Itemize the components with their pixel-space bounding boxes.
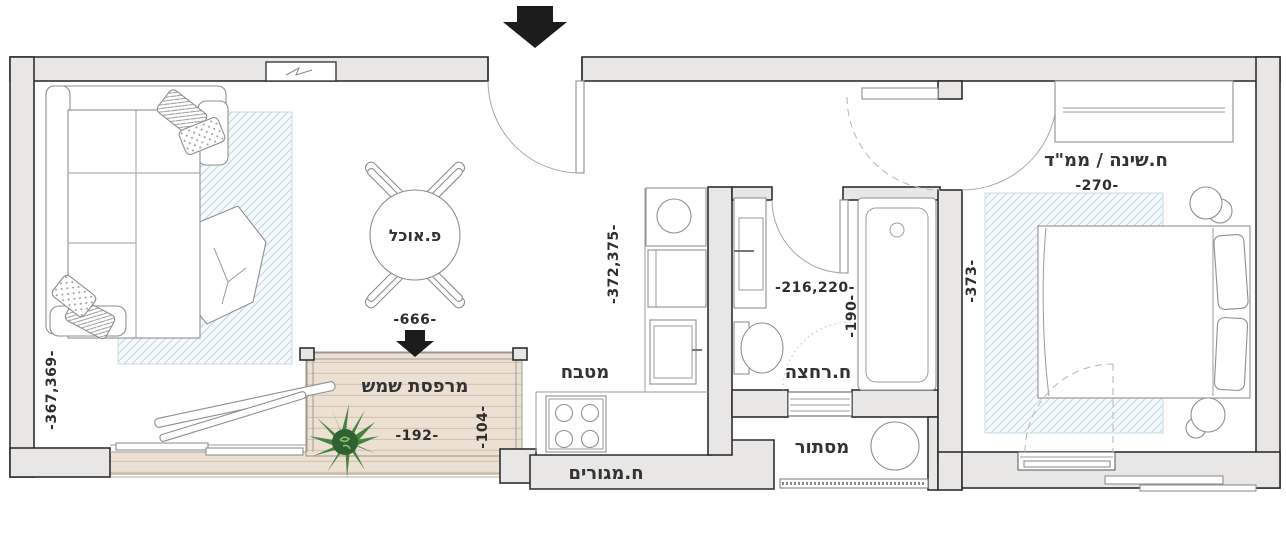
- wall-bedroom-bottom-corner: [938, 452, 962, 490]
- utility-closet: מסתור: [780, 422, 928, 488]
- bathroom: -216,220- -190- ח.רחצה: [734, 198, 936, 416]
- bedroom-depth-dim: -373-: [964, 259, 980, 302]
- balcony-depth-dim: -104-: [475, 405, 491, 448]
- pillow: [1213, 234, 1248, 310]
- outer-wall-left: [10, 57, 34, 477]
- pouf-bottom: [1186, 398, 1225, 438]
- pillow: [1214, 317, 1248, 390]
- entry-door-swing: [488, 81, 580, 173]
- bedroom-door-swing: [962, 95, 1057, 190]
- balcony-width-dim: -192-: [395, 428, 438, 444]
- burner: [582, 431, 599, 448]
- bedroom-door-leaf: [862, 88, 938, 99]
- window-sill-outer: [1105, 476, 1223, 484]
- wardrobe: [1055, 81, 1233, 142]
- wall-bedroom-door-pier: [938, 81, 962, 99]
- bathroom-depth-dim: -190-: [844, 294, 860, 337]
- kitchen: מטבח -372,375-: [536, 188, 708, 452]
- floor-plan: פ.אוכל מרפסת שמש -192- -104-: [0, 0, 1286, 533]
- window-sill-outer-2: [1140, 485, 1256, 491]
- balcony-post-right: [513, 348, 527, 360]
- burner: [582, 405, 599, 422]
- burner: [556, 405, 573, 422]
- bedroom-label: ח.שינה / ממ"ד: [1044, 150, 1168, 171]
- burner: [556, 431, 573, 448]
- wall-utility-right: [928, 417, 938, 490]
- entry-door-leaf: [576, 81, 584, 173]
- bed: [1038, 226, 1250, 398]
- dining-label: פ.אוכל: [389, 226, 441, 245]
- utility-label: מסתור: [795, 437, 850, 458]
- entrance-arrow-icon: [503, 6, 567, 48]
- boiler: [871, 422, 919, 470]
- kitchen-sink: [657, 199, 691, 233]
- bedroom-width-dim: -270-: [1075, 178, 1118, 194]
- living-room-label: ח.מגורים: [568, 463, 643, 484]
- outer-wall-top-right: [582, 57, 1280, 81]
- bathroom-door-leaf: [840, 200, 848, 273]
- outer-wall-right: [1256, 57, 1280, 488]
- wall-bathroom-bottom-left: [732, 390, 788, 417]
- kitchen-label: מטבח: [561, 362, 610, 383]
- outer-wall-top-left: [10, 57, 488, 81]
- wall-bottom-left-stub: [10, 448, 110, 477]
- bathtub: [858, 198, 936, 390]
- living-width-dim: -666-: [393, 312, 436, 328]
- toilet: [734, 322, 783, 374]
- pouf-top: [1190, 187, 1232, 223]
- kitchen-depth-dim: -372,375-: [606, 224, 622, 304]
- bathroom-size-dim: -216,220-: [775, 280, 855, 296]
- dining-set: פ.אוכל: [363, 160, 468, 310]
- wall-bathroom-bottom-right: [852, 390, 938, 417]
- balcony-post-left: [300, 348, 314, 360]
- balcony-deck: [95, 348, 527, 477]
- balcony-label: מרפסת שמש: [362, 376, 469, 397]
- bathroom-label: ח.רחצה: [785, 362, 852, 383]
- kitchen-appliance: [648, 250, 706, 307]
- living-depth-dim: -367,369-: [44, 350, 60, 430]
- bedroom-door-swing-dashed: [847, 97, 940, 190]
- wall-kitchen-bathroom: [708, 187, 732, 455]
- wall-bathroom-bedroom: [938, 190, 962, 462]
- entry-door: [488, 57, 584, 173]
- oven: [650, 320, 696, 384]
- bathroom-vent: [788, 392, 852, 416]
- wall-niche: [266, 62, 336, 81]
- bathroom-door-swing: [772, 200, 845, 273]
